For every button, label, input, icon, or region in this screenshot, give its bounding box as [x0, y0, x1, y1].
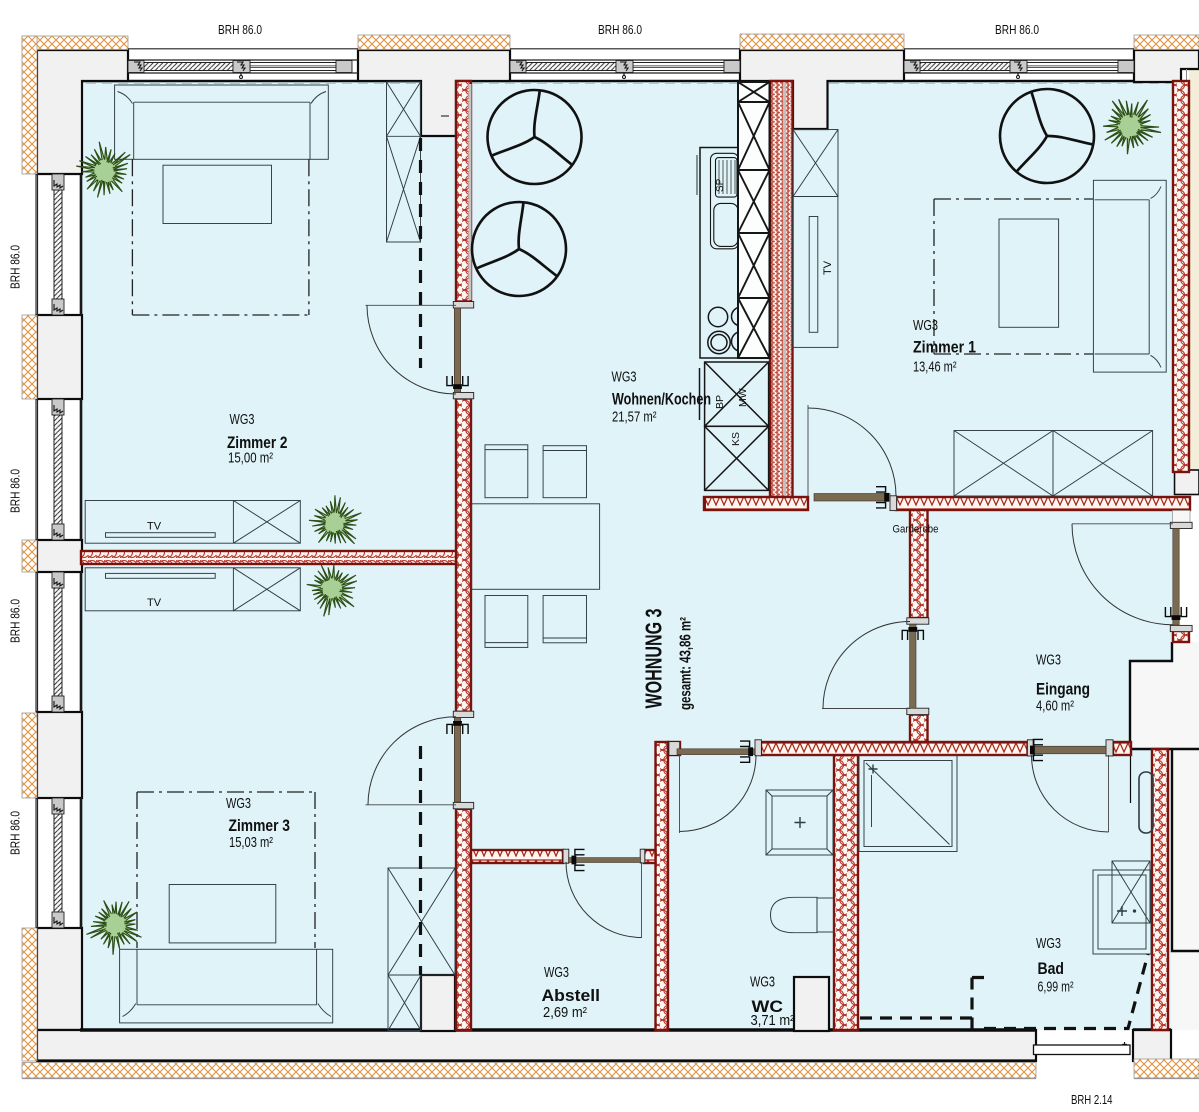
svg-text:WG3: WG3 — [612, 370, 637, 386]
svg-text:BRH 86.0: BRH 86.0 — [598, 22, 642, 37]
svg-text:WG3: WG3 — [230, 412, 255, 428]
svg-text:BRH 86.0: BRH 86.0 — [8, 469, 23, 513]
svg-text:Zimmer 3: Zimmer 3 — [229, 817, 291, 835]
svg-text:4,60 m²: 4,60 m² — [1036, 699, 1074, 715]
svg-text:15,00 m²: 15,00 m² — [228, 451, 273, 467]
svg-text:WG3: WG3 — [913, 318, 938, 334]
svg-text:BRH 86.0: BRH 86.0 — [8, 599, 23, 643]
svg-text:BRH 86.0: BRH 86.0 — [218, 22, 262, 37]
svg-text:13,46 m²: 13,46 m² — [913, 360, 957, 376]
svg-text:TV: TV — [147, 521, 162, 533]
svg-text:6,99 m²: 6,99 m² — [1038, 980, 1074, 996]
svg-text:BP: BP — [714, 395, 726, 409]
svg-text:Zimmer 2: Zimmer 2 — [227, 434, 288, 452]
svg-text:BRH 86.0: BRH 86.0 — [8, 245, 23, 289]
svg-text:BRH 86.0: BRH 86.0 — [995, 22, 1039, 37]
svg-text:Wohnen/Kochen: Wohnen/Kochen — [612, 391, 711, 409]
svg-text:TV: TV — [147, 597, 162, 609]
svg-text:15,03 m²: 15,03 m² — [229, 835, 273, 851]
svg-text:TV: TV — [822, 260, 834, 275]
svg-text:MW: MW — [737, 388, 749, 407]
svg-text:BRH 2.14: BRH 2.14 — [1071, 1092, 1113, 1107]
svg-text:21,57 m²: 21,57 m² — [612, 410, 657, 426]
svg-text:WG3: WG3 — [226, 796, 251, 812]
svg-text:gesamt: 43,86 m²: gesamt: 43,86 m² — [678, 617, 695, 710]
svg-text:3,71 m²: 3,71 m² — [751, 1013, 795, 1029]
svg-text:Abstell: Abstell — [542, 987, 601, 1005]
svg-text:WG3: WG3 — [1036, 653, 1061, 669]
svg-text:WG3: WG3 — [1036, 936, 1061, 952]
svg-text:2,69 m²: 2,69 m² — [543, 1005, 587, 1021]
svg-text:WG3: WG3 — [750, 975, 775, 991]
svg-text:Eingang: Eingang — [1036, 681, 1090, 699]
svg-text:Garderobe: Garderobe — [893, 524, 939, 536]
svg-text:BRH 86.0: BRH 86.0 — [8, 811, 23, 855]
svg-text:WG3: WG3 — [544, 965, 569, 981]
svg-text:SP: SP — [715, 178, 726, 192]
svg-text:Bad: Bad — [1038, 960, 1065, 978]
svg-text:WOHNUNG 3: WOHNUNG 3 — [641, 609, 667, 709]
svg-text:Zimmer 1: Zimmer 1 — [913, 339, 976, 357]
svg-text:KS: KS — [730, 432, 742, 446]
